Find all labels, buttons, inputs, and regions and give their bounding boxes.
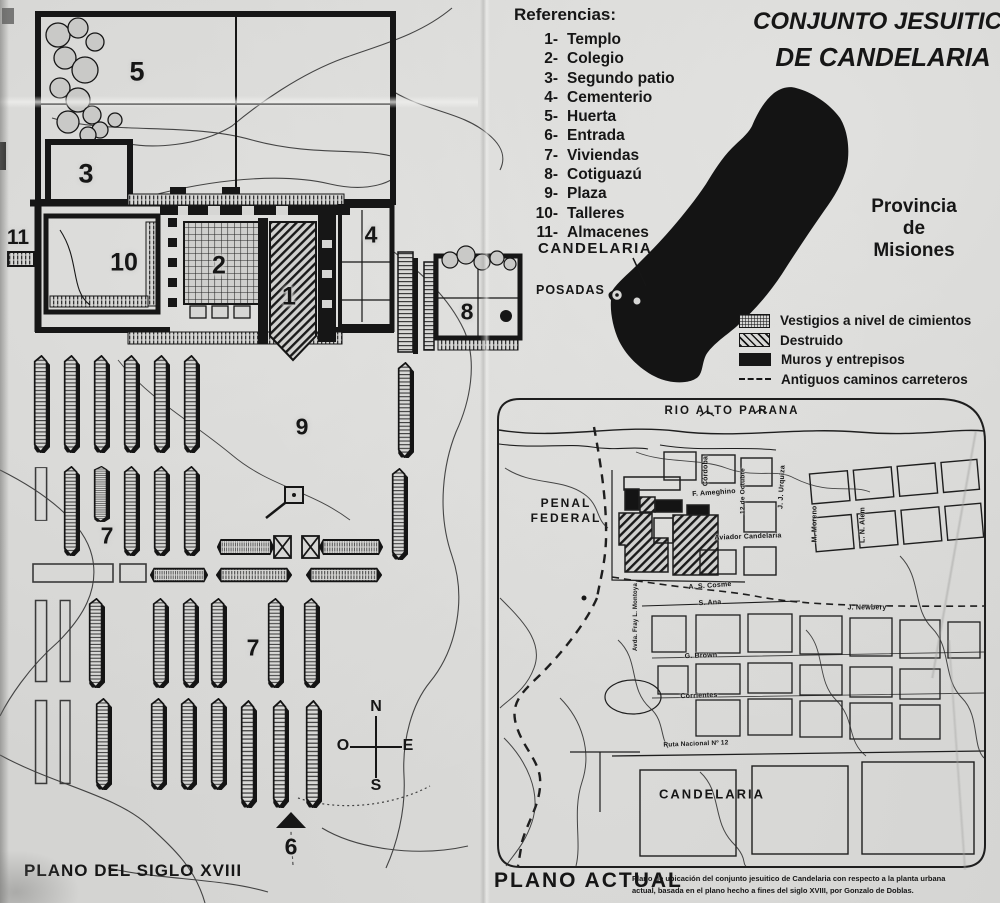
x-box	[274, 536, 319, 558]
compass-rose	[350, 716, 402, 778]
river-label: RIO ALTO PARANA	[665, 405, 800, 417]
reference-item: 6-Entrada	[514, 126, 675, 145]
reference-item: 4-Cementerio	[514, 88, 675, 107]
stipple-swatch-icon	[739, 314, 770, 328]
number-label-2: 2	[212, 252, 226, 281]
reference-item: 2-Colegio	[514, 49, 675, 68]
references-heading: Referencias:	[514, 5, 675, 25]
map-artwork	[0, 0, 1000, 903]
map-legend: Vestigios a nivel de cimientos Destruido…	[739, 311, 971, 389]
caption-line2: actual, basada en el plano hecho a fines…	[632, 886, 914, 895]
street-label-octubre: 12 de Octubre	[740, 468, 747, 514]
number-label-1: 1	[282, 283, 296, 312]
number-label-4: 4	[365, 222, 378, 249]
candelaria-city-label: CANDELARIA	[659, 787, 765, 802]
entrance-arrow	[276, 812, 306, 828]
reference-item: 3-Segundo patio	[514, 69, 675, 88]
solid-swatch-icon	[739, 353, 771, 366]
number-label-11: 11	[7, 226, 29, 250]
number-label-9: 9	[296, 414, 309, 441]
street-label-newbery: J. Newbery	[848, 605, 887, 612]
street-label-brown: G. Brown	[685, 652, 718, 660]
reference-item: 1-Templo	[514, 30, 675, 49]
number-label-5: 5	[129, 57, 144, 88]
legend-item: Muros y entrepisos	[739, 350, 971, 370]
legend-item: Vestigios a nivel de cimientos	[739, 311, 971, 331]
references-panel: Referencias: 1-Templo 2-Colegio 3-Segund…	[514, 5, 675, 242]
reference-item: 7-Viviendas	[514, 146, 675, 165]
number-label-3: 3	[78, 159, 93, 190]
paper-crease-vertical	[480, 0, 490, 903]
penal-federal-line2: FEDERAL	[531, 511, 602, 525]
street-label-corrientes: Corrientes	[680, 692, 717, 700]
page-title-line1: CONJUNTO JESUITICO	[753, 8, 998, 36]
compass-east-label: E	[403, 737, 414, 755]
street-label-moreno: M. Moreno	[812, 506, 819, 543]
reference-item: 8-Cotiguazú	[514, 165, 675, 184]
street-label-montoya: Avda. Fray L. Montoya	[633, 583, 639, 651]
number-label-7a: 7	[101, 523, 114, 550]
number-label-8: 8	[461, 299, 474, 326]
dashed-line-swatch-icon	[739, 378, 771, 380]
compass-north-label: N	[370, 698, 382, 716]
legend-item: Antiguos caminos carreteros	[739, 370, 971, 390]
viviendas-rows	[33, 356, 414, 808]
paper-crease-horizontal	[0, 96, 478, 108]
compass-south-label: S	[371, 777, 382, 795]
province-name: Provincia de Misiones	[855, 196, 973, 262]
street-label-sana: S. Ana	[698, 599, 721, 607]
scanned-map-page: Referencias: 1-Templo 2-Colegio 3-Segund…	[0, 0, 1000, 903]
almacenes	[8, 252, 34, 266]
number-label-6: 6	[285, 834, 298, 861]
number-label-7b: 7	[247, 635, 260, 662]
reference-item: 9-Plaza	[514, 184, 675, 203]
caption-line1: Plano de ubicación del conjunto jesuitic…	[632, 874, 945, 883]
compass-west-label: O	[337, 737, 349, 755]
scan-edge-shadow	[0, 0, 9, 903]
candelaria-province-label: CANDELARIA	[538, 240, 652, 257]
city-blocks-bottom	[640, 762, 974, 856]
street-label-alem: L. N. Alem	[860, 507, 867, 543]
page-title-line2: DE CANDELARIA	[768, 42, 998, 73]
reference-item: 10-Talleres	[514, 204, 675, 223]
posadas-label: POSADAS	[536, 283, 605, 297]
reference-item: 5-Huerta	[514, 107, 675, 126]
street-label-cordoba: Córdoba	[703, 456, 710, 486]
scan-smudge	[0, 850, 80, 903]
number-label-10: 10	[110, 249, 138, 278]
old-plan-drawing	[0, 8, 520, 903]
legend-item: Destruido	[739, 331, 971, 351]
door-column	[168, 218, 177, 307]
hatch-swatch-icon	[739, 333, 770, 347]
penal-federal-line1: PENAL	[541, 496, 592, 510]
